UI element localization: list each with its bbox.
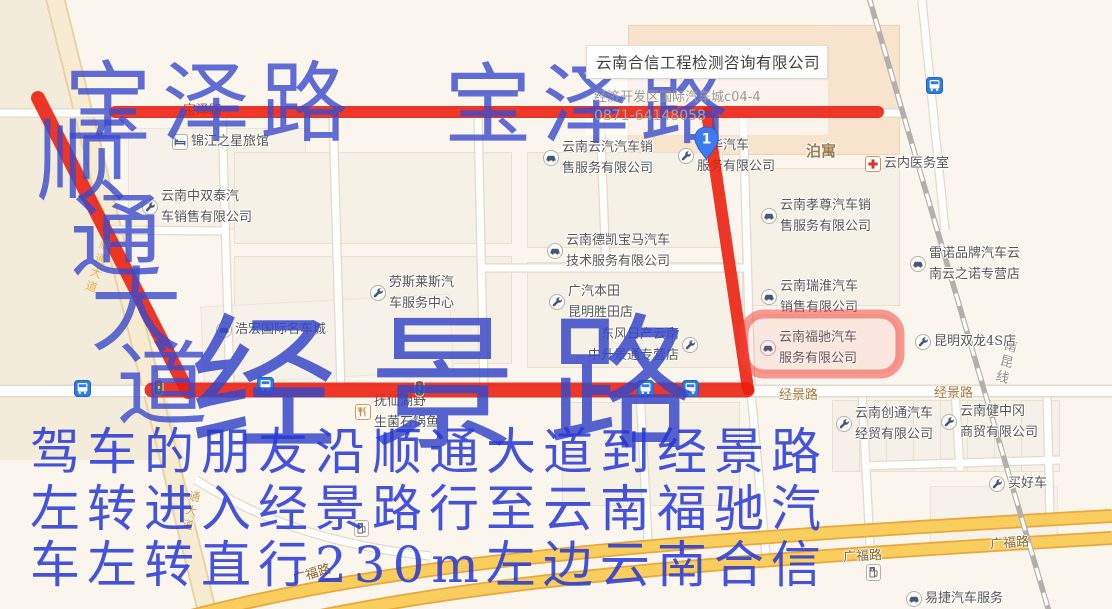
poi-label-line: 劳斯莱斯汽 bbox=[389, 272, 454, 293]
poi-maihaoche[interactable]: 买好车 bbox=[989, 473, 1047, 494]
traffic-light-1 bbox=[153, 379, 164, 396]
poi-label: 云内医务室 bbox=[884, 153, 949, 174]
bus-stop-2[interactable] bbox=[257, 377, 274, 394]
road-name-label: 经景路 bbox=[934, 382, 973, 401]
poi-label-line: 商贸有限公司 bbox=[960, 422, 1038, 443]
poi-label-line: 浩宏国际名车城 bbox=[235, 319, 326, 340]
poi-label: 东风日产云南中升景通专营店 bbox=[588, 324, 679, 366]
poi-label: 云南孝尊汽车销售服务有限公司 bbox=[780, 195, 871, 237]
wrench-icon bbox=[836, 416, 852, 432]
poi-label-line: 泊寓 bbox=[806, 141, 836, 162]
traffic-icon bbox=[414, 380, 425, 397]
poi-label-line: 南云之诺专营店 bbox=[929, 264, 1020, 285]
poi-label-line: 车销售有限公司 bbox=[161, 207, 252, 228]
poi-label-line: 售服务有限公司 bbox=[562, 158, 653, 179]
info-card-address: 经济开发区国际汽车城c04-4 bbox=[594, 86, 761, 105]
poi-label: 云南瑞淮汽车销售有限公司 bbox=[780, 276, 858, 318]
wrench-icon bbox=[915, 334, 931, 350]
poi-label-line: 抚仙湖野 bbox=[374, 391, 439, 412]
poi-label-line: 销售有限公司 bbox=[780, 297, 858, 318]
info-card[interactable]: 云南合信工程检测咨询有限公司 bbox=[586, 45, 828, 79]
poi-chuangtong[interactable]: 云南创通汽车经贸有限公司 bbox=[836, 403, 933, 445]
railway-nankun bbox=[868, 0, 1050, 609]
poi-label: 云南创通汽车经贸有限公司 bbox=[855, 403, 933, 445]
restaurant-icon bbox=[355, 404, 371, 420]
poi-boyu[interactable]: 泊寓 bbox=[806, 141, 836, 162]
fuel-icon bbox=[866, 564, 881, 581]
poi-laosilaisi[interactable]: 劳斯莱斯汽车服务中心 bbox=[370, 272, 454, 314]
poi-label-line: 买好车 bbox=[1008, 473, 1047, 494]
wrench-icon bbox=[682, 337, 698, 353]
poi-label-line: 车服务中心 bbox=[389, 293, 454, 314]
map-marker-pin[interactable]: 1 bbox=[693, 126, 720, 164]
map-canvas[interactable]: 宝泽路经景路经景路广福路广福路广福路南昆线通大道 锦江之星旅馆云南中双泰汽车销售… bbox=[0, 0, 1112, 609]
poi-label: 云南福驰汽车服务有限公司 bbox=[779, 327, 857, 369]
traffic-light-2 bbox=[414, 380, 425, 397]
poi-haohong[interactable]: 浩宏国际名车城 bbox=[216, 319, 326, 340]
bus-icon bbox=[74, 380, 91, 397]
poi-label-line: 技术服务有限公司 bbox=[566, 251, 670, 272]
bus-stop-1[interactable] bbox=[74, 380, 91, 397]
poi-label-line: 云南中双泰汽 bbox=[161, 186, 252, 207]
car-icon bbox=[543, 150, 559, 166]
poi-label-line: 中升景通专营店 bbox=[588, 345, 679, 366]
poi-label-line: 生菌石锅鱼 bbox=[374, 412, 439, 433]
poi-label-line: 云南健中冈 bbox=[960, 401, 1038, 422]
poi-label: 广汽本田昆明胜田店 bbox=[568, 281, 633, 323]
bus-icon bbox=[926, 77, 943, 94]
car-icon bbox=[906, 591, 922, 607]
hotel-icon bbox=[172, 134, 188, 150]
poi-dekai-bmw[interactable]: 云南德凯宝马汽车技术服务有限公司 bbox=[547, 230, 670, 272]
poi-label-line: 云内医务室 bbox=[884, 153, 949, 174]
wrench-icon bbox=[989, 476, 1005, 492]
car-icon bbox=[547, 243, 563, 259]
poi-label-line: 云南孝尊汽车销 bbox=[780, 195, 871, 216]
minor-roads-casing bbox=[0, 0, 1060, 556]
poi-shuanglong-4s[interactable]: 昆明双龙4S店 bbox=[915, 331, 1016, 352]
poi-label: 昆明双龙4S店 bbox=[934, 331, 1016, 352]
road-name-label: 宝泽路 bbox=[183, 99, 222, 118]
poi-label-line: 昆明双龙4S店 bbox=[934, 331, 1016, 352]
road-name-label: 广福路 bbox=[989, 531, 1029, 553]
poi-dongfeng-nissan[interactable]: 东风日产云南中升景通专营店 bbox=[588, 324, 698, 366]
wrench-icon bbox=[678, 148, 694, 164]
poi-label: 锦江之星旅馆 bbox=[191, 131, 269, 152]
car-icon bbox=[216, 322, 232, 338]
car-icon bbox=[760, 340, 776, 356]
poi-guangqi-honda[interactable]: 广汽本田昆明胜田店 bbox=[549, 281, 633, 323]
poi-fuxianhu[interactable]: 抚仙湖野生菌石锅鱼 bbox=[355, 391, 439, 433]
poi-label-line: 昆明胜田店 bbox=[568, 302, 633, 323]
road-name-label: 广福路 bbox=[843, 544, 883, 565]
wrench-icon bbox=[941, 414, 957, 430]
fuel-station-1[interactable] bbox=[354, 520, 369, 537]
medical-icon bbox=[865, 156, 881, 172]
poi-label-line: 锦江之星旅馆 bbox=[191, 131, 269, 152]
poi-xiaozun[interactable]: 云南孝尊汽车销售服务有限公司 bbox=[761, 195, 871, 237]
road-name-label: 经景路 bbox=[779, 384, 818, 403]
poi-label: 抚仙湖野生菌石锅鱼 bbox=[374, 391, 439, 433]
car-icon bbox=[910, 256, 926, 272]
car-icon bbox=[761, 208, 777, 224]
poi-label: 云南中双泰汽车销售有限公司 bbox=[161, 186, 252, 228]
poi-label: 云南德凯宝马汽车技术服务有限公司 bbox=[566, 230, 670, 272]
poi-zhongshuangtai[interactable]: 云南中双泰汽车销售有限公司 bbox=[142, 186, 252, 228]
poi-label: 泊寓 bbox=[806, 141, 836, 162]
fuel-icon bbox=[354, 520, 369, 537]
poi-label-line: 易捷汽车服务 bbox=[925, 588, 1003, 609]
poi-label-line: 云南创通汽车 bbox=[855, 403, 933, 424]
poi-yunnei-clinic[interactable]: 云内医务室 bbox=[865, 153, 949, 174]
poi-jianzhonggang[interactable]: 云南健中冈商贸有限公司 bbox=[941, 401, 1038, 443]
poi-label-line: 东风日产云南 bbox=[588, 324, 679, 345]
info-card-phone: 0871-64148058 bbox=[594, 108, 706, 124]
poi-ruihuai[interactable]: 云南瑞淮汽车销售有限公司 bbox=[761, 276, 858, 318]
poi-label-line: 云南瑞淮汽车 bbox=[780, 276, 858, 297]
poi-label-line: 服务有限公司 bbox=[779, 348, 857, 369]
bus-icon bbox=[257, 377, 274, 394]
traffic-icon bbox=[153, 379, 164, 396]
bus-icon bbox=[637, 380, 654, 397]
poi-fuchi[interactable]: 云南福驰汽车服务有限公司 bbox=[760, 327, 857, 369]
poi-label: 云南云汽汽车销售服务有限公司 bbox=[562, 137, 653, 179]
poi-label: 浩宏国际名车城 bbox=[235, 319, 326, 340]
poi-label-line: 广汽本田 bbox=[568, 281, 633, 302]
poi-label: 买好车 bbox=[1008, 473, 1047, 494]
poi-label: 易捷汽车服务 bbox=[925, 588, 1003, 609]
poi-jinjiang-hotel[interactable]: 锦江之星旅馆 bbox=[172, 131, 269, 152]
poi-label: 劳斯莱斯汽车服务中心 bbox=[389, 272, 454, 314]
poi-label: 雷诺品牌汽车云南云之诺专营店 bbox=[929, 243, 1020, 285]
bus-stop-5[interactable] bbox=[926, 77, 943, 94]
wrench-icon bbox=[549, 294, 565, 310]
poi-label-line: 售服务有限公司 bbox=[780, 216, 871, 237]
car-icon bbox=[761, 289, 777, 305]
minor-roads bbox=[0, 0, 1060, 556]
poi-label-line: 云南福驰汽车 bbox=[779, 327, 857, 348]
poi-label-line: 雷诺品牌汽车云 bbox=[929, 243, 1020, 264]
poi-label: 云南健中冈商贸有限公司 bbox=[960, 401, 1038, 443]
bus-stop-4[interactable] bbox=[682, 380, 699, 397]
bus-stop-3[interactable] bbox=[637, 380, 654, 397]
fuel-station-2[interactable] bbox=[866, 564, 881, 581]
wrench-icon bbox=[370, 285, 386, 301]
poi-label-line: 云南云汽汽车销 bbox=[562, 137, 653, 158]
poi-yunqi[interactable]: 云南云汽汽车销售服务有限公司 bbox=[543, 137, 653, 179]
wrench-icon bbox=[142, 199, 158, 215]
poi-label-line: 经贸有限公司 bbox=[855, 424, 933, 445]
marker-number: 1 bbox=[702, 132, 712, 148]
poi-yijie[interactable]: 易捷汽车服务 bbox=[906, 588, 1003, 609]
poi-label-line: 云南德凯宝马汽车 bbox=[566, 230, 670, 251]
info-card-title: 云南合信工程检测咨询有限公司 bbox=[596, 51, 820, 73]
bus-icon bbox=[682, 380, 699, 397]
poi-leinuo[interactable]: 雷诺品牌汽车云南云之诺专营店 bbox=[910, 243, 1020, 285]
